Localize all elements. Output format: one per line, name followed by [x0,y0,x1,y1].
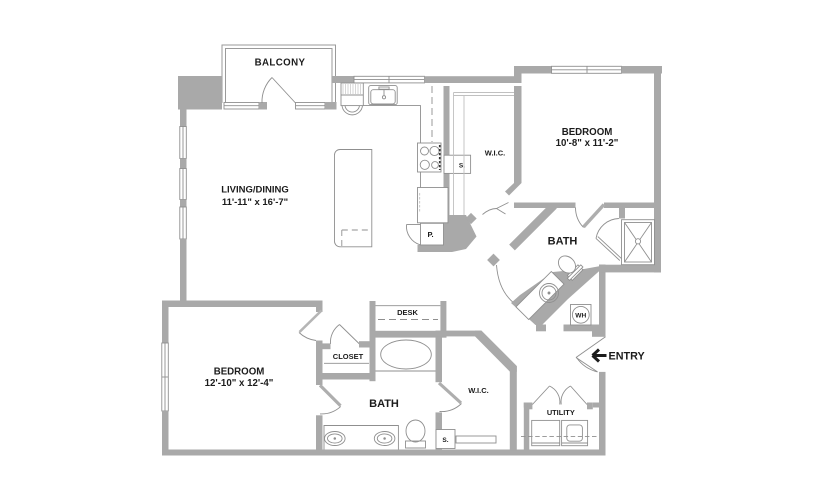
svg-text:LIVING/DINING: LIVING/DINING [221,184,289,195]
svg-text:12'-10" x 12'-4": 12'-10" x 12'-4" [205,378,274,389]
svg-text:BATH: BATH [369,398,399,410]
svg-text:11'-11" x 16'-7": 11'-11" x 16'-7" [222,197,288,208]
svg-text:ENTRY: ENTRY [609,350,646,362]
svg-text:BEDROOM: BEDROOM [214,367,265,378]
svg-text:W.I.C.: W.I.C. [485,149,505,158]
svg-text:BATH: BATH [548,236,578,248]
svg-text:DESK: DESK [397,308,418,317]
svg-text:WH: WH [575,312,586,319]
svg-text:10'-8" x 11'-2": 10'-8" x 11'-2" [556,138,619,149]
svg-text:W.I.C.: W.I.C. [468,386,488,395]
svg-text:BALCONY: BALCONY [255,57,306,68]
svg-text:UTILITY: UTILITY [547,408,575,417]
svg-text:CLOSET: CLOSET [333,352,364,361]
svg-text:P.: P. [427,230,433,239]
svg-text:BEDROOM: BEDROOM [562,127,613,138]
svg-text:S.: S. [442,437,448,444]
